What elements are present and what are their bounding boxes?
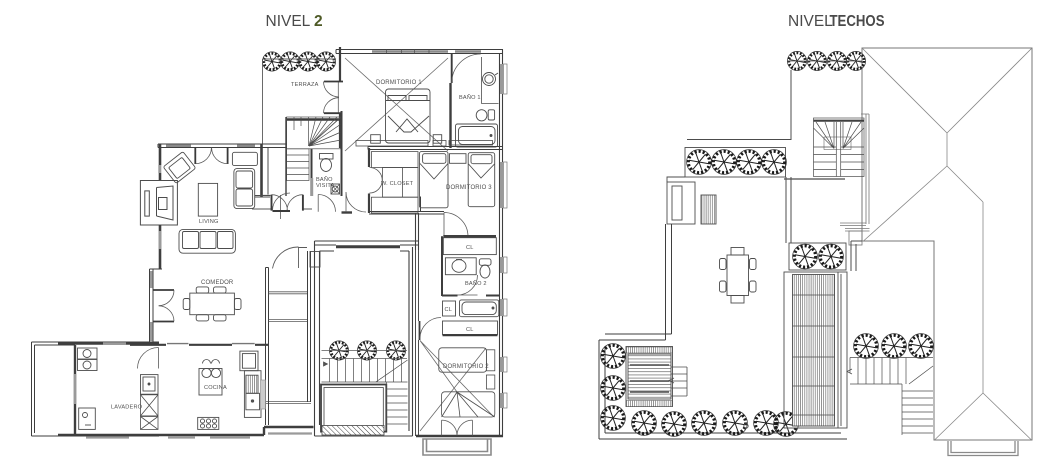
svg-text:TERRAZA: TERRAZA	[291, 82, 319, 88]
svg-text:LIVING: LIVING	[199, 219, 219, 225]
svg-text:CL: CL	[466, 245, 474, 251]
svg-text:LAVADERO: LAVADERO	[111, 405, 143, 411]
svg-text:NIVEL: NIVEL	[788, 13, 833, 30]
svg-text:CL: CL	[445, 307, 453, 313]
svg-text:CL: CL	[466, 327, 474, 333]
svg-text:DORMITORIO 1: DORMITORIO 1	[376, 80, 422, 86]
svg-text:COMEDOR: COMEDOR	[201, 280, 234, 286]
svg-text:NIVEL 2: NIVEL 2	[266, 13, 323, 30]
svg-text:BAÑO 1: BAÑO 1	[459, 94, 481, 101]
svg-text:DORMITORIO 3: DORMITORIO 3	[446, 185, 492, 191]
svg-text:DORMITORIO 2: DORMITORIO 2	[443, 364, 489, 370]
svg-text:COCINA: COCINA	[204, 385, 227, 391]
svg-text:BAÑO: BAÑO	[316, 176, 333, 183]
svg-text:W. CLOSET: W. CLOSET	[381, 181, 414, 187]
svg-text:TECHOS: TECHOS	[830, 13, 885, 30]
